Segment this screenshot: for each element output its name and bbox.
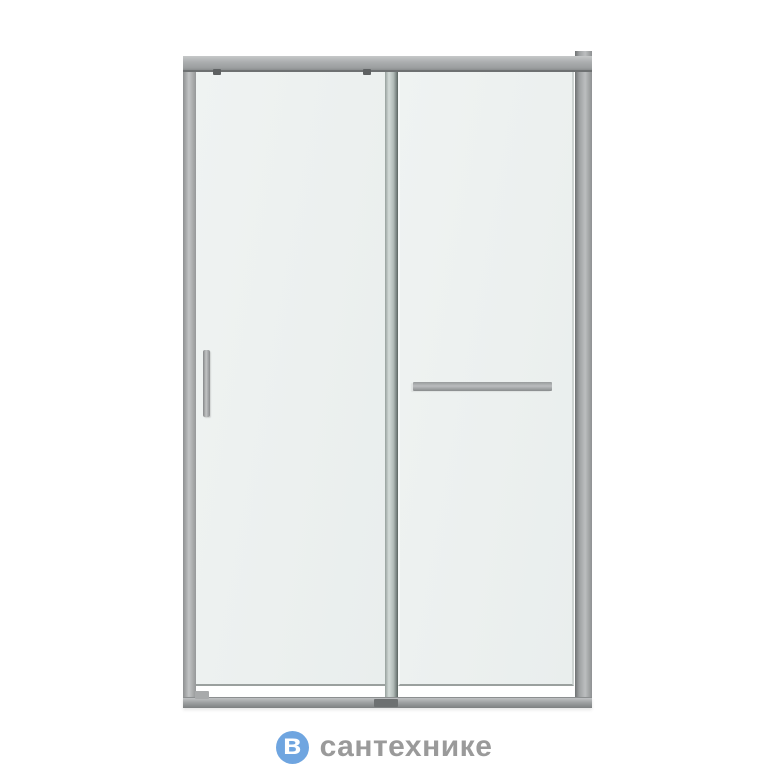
- watermark-logo-letter: в: [283, 730, 301, 760]
- watermark-logo-icon: в: [276, 731, 309, 764]
- product-photo: в сантехнике: [0, 0, 768, 768]
- right-wall-profile: [575, 51, 592, 707]
- fixed-panel-glass: [398, 72, 574, 686]
- left-wall-profile: [183, 56, 196, 707]
- watermark-brand-text: сантехнике: [320, 730, 493, 764]
- top-rail: [183, 56, 592, 72]
- sliding-door-glass: [196, 72, 385, 686]
- shower-door: [183, 56, 592, 707]
- watermark: в сантехнике: [0, 729, 768, 765]
- door-handle: [203, 350, 210, 417]
- bottom-guide-left: [195, 691, 209, 699]
- sliding-door-edge-profile: [385, 72, 398, 701]
- bottom-guide-center: [374, 699, 398, 707]
- towel-bar-handle: [413, 382, 552, 391]
- roller-bracket-icon: [213, 69, 221, 75]
- roller-bracket-icon: [363, 69, 371, 75]
